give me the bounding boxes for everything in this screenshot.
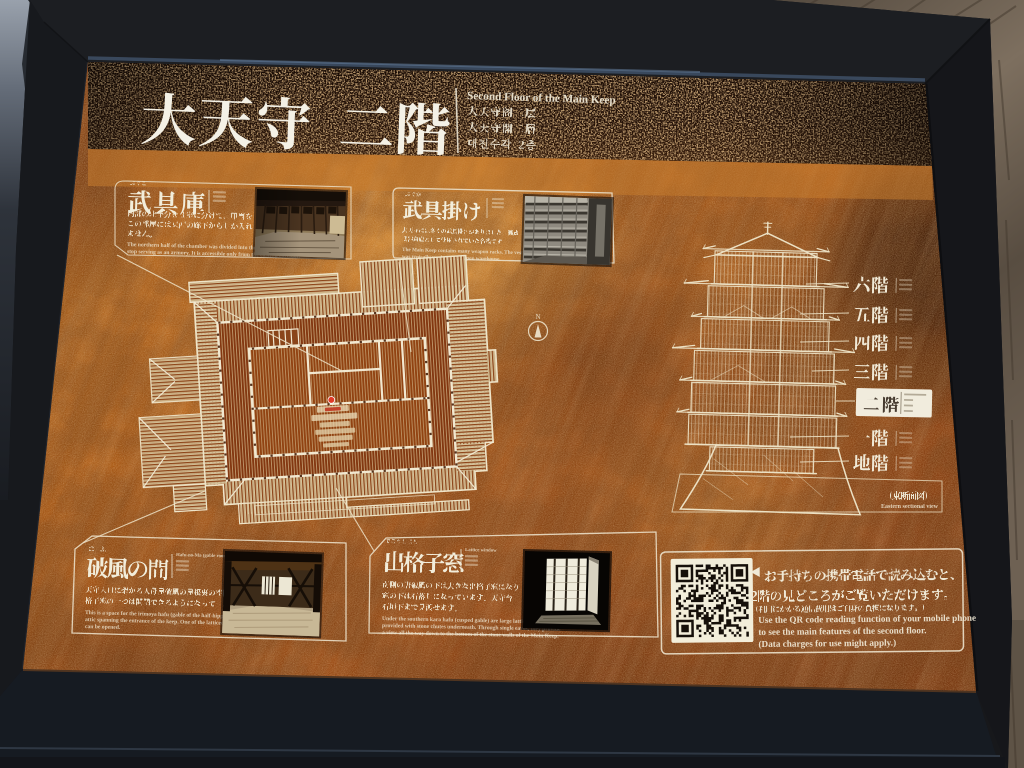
- svg-text:Lattice window: Lattice window: [465, 548, 497, 554]
- svg-text:Eastern sectional view: Eastern sectional view: [881, 504, 939, 510]
- svg-text:(Data charges for use might ap: (Data charges for use might apply.): [758, 638, 896, 649]
- svg-text:to see the main features of th: to see the main features of the second f…: [758, 625, 926, 637]
- svg-text:can be opened.: can be opened.: [85, 624, 121, 631]
- svg-text:N: N: [535, 313, 540, 321]
